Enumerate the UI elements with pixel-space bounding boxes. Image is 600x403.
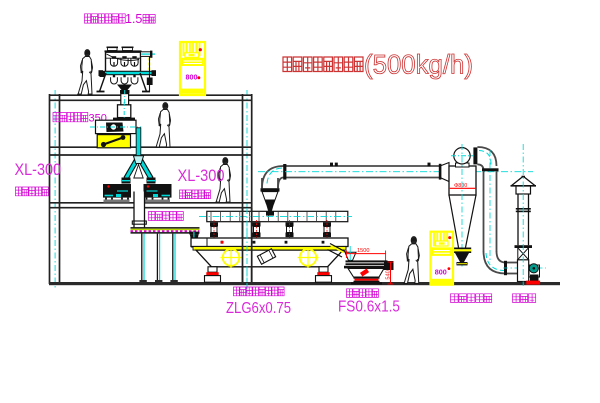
svg-text:1.5: 1.5 bbox=[125, 12, 142, 26]
svg-text:ZLG6x0.75: ZLG6x0.75 bbox=[226, 300, 291, 317]
svg-text:XL-300: XL-300 bbox=[178, 167, 225, 185]
svg-text:XL-300: XL-300 bbox=[15, 161, 62, 179]
svg-text:FS0.6x1.5: FS0.6x1.5 bbox=[338, 299, 400, 316]
svg-text:800: 800 bbox=[186, 73, 198, 82]
svg-text:(500kg/h): (500kg/h) bbox=[364, 50, 473, 80]
svg-text:1500: 1500 bbox=[357, 248, 369, 254]
svg-text:540: 540 bbox=[385, 270, 391, 279]
svg-text:800: 800 bbox=[435, 268, 447, 277]
svg-text:Φ800: Φ800 bbox=[454, 183, 467, 189]
